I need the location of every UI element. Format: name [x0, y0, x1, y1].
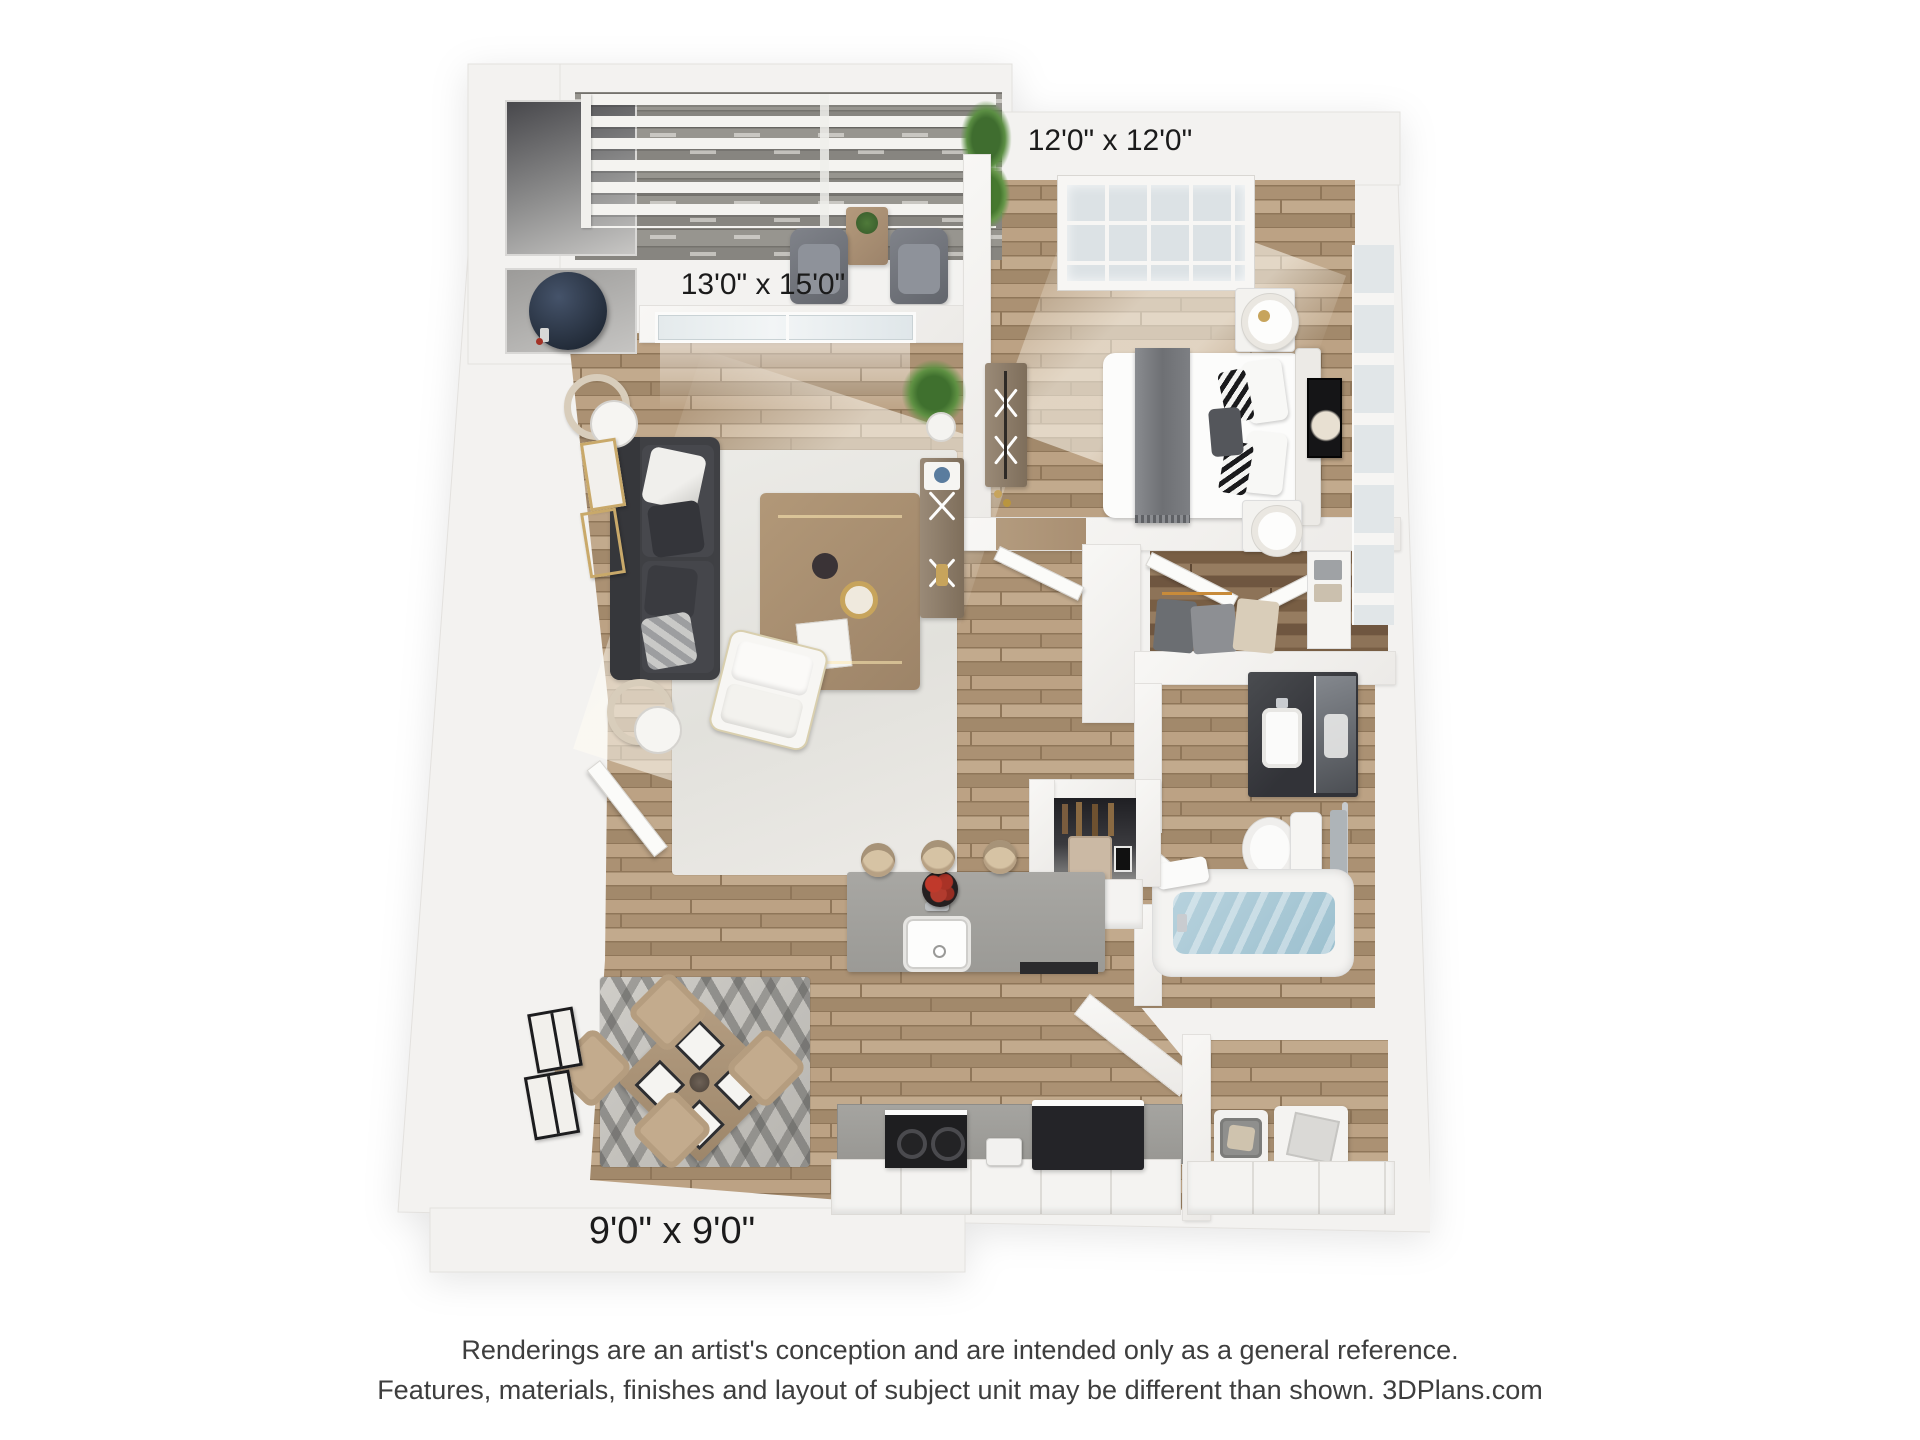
bar-stool: [921, 840, 955, 874]
disclaimer: Renderings are an artist's conception an…: [0, 1330, 1920, 1410]
bed-runner: [1135, 348, 1190, 523]
floor-plan-page: 12'0" x 12'0" 13'0" x 15'0" 9'0" x 9'0" …: [0, 0, 1920, 1440]
refrigerator: [1032, 1100, 1144, 1170]
mirror-reflection: [1324, 714, 1348, 758]
console-decor-gold: [936, 564, 948, 586]
window-grid: [1067, 185, 1245, 281]
broom: [1076, 802, 1082, 836]
decor-vase: [812, 553, 838, 579]
label-dining-dims: 9'0" x 9'0": [497, 1210, 847, 1253]
tub-water: [1173, 892, 1335, 954]
media-console: [920, 458, 964, 618]
fruit-bowl: [922, 871, 958, 907]
plant-pot: [926, 412, 956, 442]
dresser-seam: [1004, 371, 1007, 479]
wall: [1030, 780, 1054, 886]
broom-closet: [1054, 798, 1136, 882]
decor-bowl: [840, 581, 878, 619]
hanging-clothes: [1190, 604, 1237, 655]
sliding-door-mullion: [786, 315, 789, 340]
patio-plant: [856, 212, 878, 234]
label-patio-dims: 13'0" x 15'0": [613, 268, 913, 302]
door-light-reflection: [660, 342, 910, 412]
bar-stool: [861, 843, 895, 877]
sink-drain: [933, 945, 946, 958]
pergola-beam: [581, 94, 591, 228]
lamp-finial: [1258, 310, 1270, 322]
hanging-clothes: [1153, 598, 1197, 653]
pergola-beam: [820, 94, 829, 228]
pergola-slats: [581, 94, 996, 228]
disclaimer-line-1: Renderings are an artist's conception an…: [0, 1330, 1920, 1370]
label-bedroom-dims: 12'0" x 12'0": [960, 124, 1260, 158]
bathroom-vanity: [1248, 672, 1358, 797]
closet-rod: [1162, 592, 1232, 595]
countertop-appliance: [986, 1138, 1022, 1166]
table-trim: [778, 515, 902, 518]
wall: [964, 155, 990, 550]
broom: [1108, 803, 1114, 836]
wall-art: [1307, 378, 1342, 458]
hanging-clothes: [1232, 598, 1279, 654]
closet-shelf: [1308, 552, 1350, 648]
stove-burner: [897, 1129, 927, 1159]
side-table: [634, 706, 682, 754]
vacuum: [1114, 846, 1132, 872]
disclaimer-line-2: Features, materials, finishes and layout…: [0, 1370, 1920, 1410]
table-lamp: [1252, 506, 1302, 556]
broom: [1062, 804, 1068, 834]
bar-stool: [983, 840, 1017, 874]
range-stove: [885, 1110, 967, 1168]
folded-clothes: [1314, 584, 1342, 602]
pillow-dark: [1208, 407, 1244, 458]
sofa: [610, 437, 720, 680]
pillow-diamond: [640, 611, 698, 671]
kitchen-island: [847, 872, 1105, 972]
wall-art: [1307, 292, 1338, 372]
wall: [1136, 780, 1160, 886]
laundry-basket: [1220, 1118, 1262, 1158]
tub-faucet: [1177, 914, 1187, 932]
runner-fringe: [1135, 515, 1190, 523]
stove-burner: [931, 1127, 965, 1161]
decor-shoes: [994, 490, 1002, 498]
laundry-cabinets: [1188, 1162, 1394, 1214]
sink-faucet: [1276, 698, 1288, 708]
wall: [1083, 545, 1140, 722]
dryer-door: [1286, 1112, 1340, 1165]
bedroom-doorway: [996, 518, 1086, 550]
water-heater-gauge: [536, 338, 543, 345]
dresser: [985, 363, 1027, 487]
pillow-dark: [647, 500, 706, 559]
dryer: [1274, 1106, 1348, 1166]
centerpiece: [685, 1068, 713, 1096]
broom: [1092, 804, 1098, 836]
washer: [1214, 1110, 1268, 1168]
vanity-sink: [1262, 708, 1302, 768]
dishwasher-front: [1020, 962, 1098, 974]
laundry-items: [1226, 1124, 1255, 1151]
table-lamp: [1242, 294, 1298, 350]
console-decor: [934, 467, 950, 483]
floor-plan: 12'0" x 12'0" 13'0" x 15'0" 9'0" x 9'0": [390, 60, 1430, 1290]
decor-shoes: [1003, 499, 1011, 507]
towel: [1330, 810, 1347, 876]
bed: [1103, 353, 1303, 518]
pillow-dark: [644, 565, 699, 620]
island-sink: [903, 916, 971, 972]
sliding-glass-door: [655, 312, 916, 343]
folded-clothes: [1314, 560, 1342, 580]
bedroom-window: [1058, 176, 1254, 290]
bedroom-side-windows: [1352, 245, 1394, 625]
